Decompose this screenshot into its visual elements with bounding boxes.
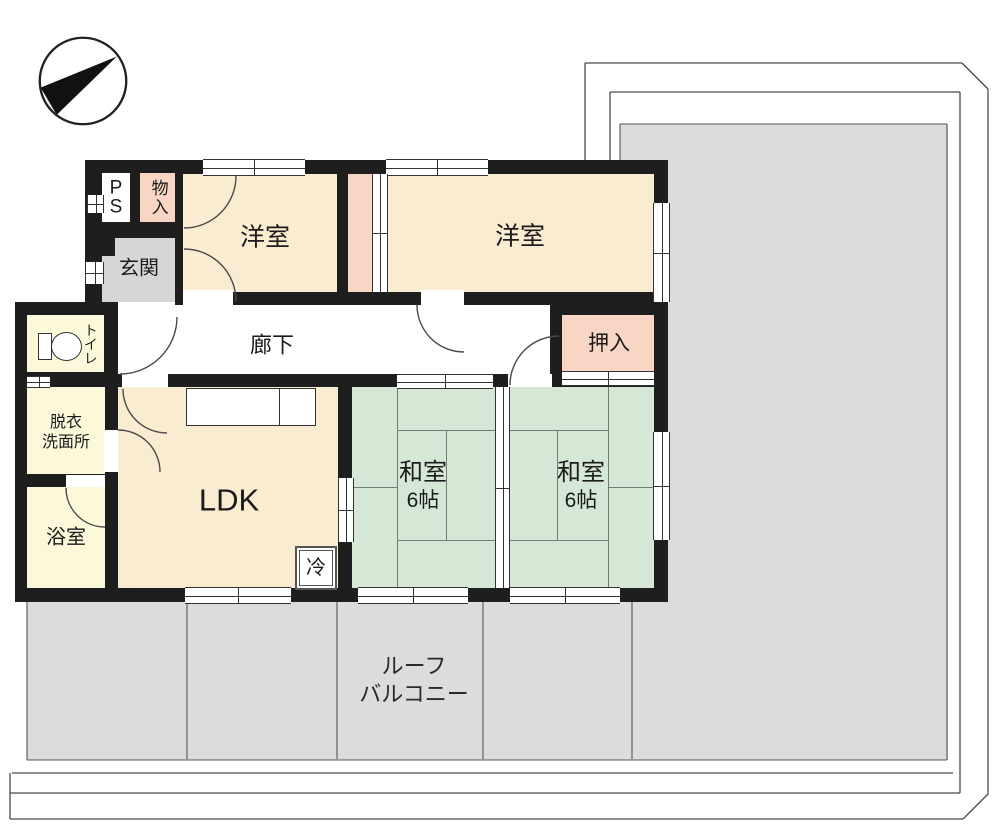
fridge-label: 冷 xyxy=(306,556,326,581)
window xyxy=(358,587,468,604)
tatami-line xyxy=(397,540,495,541)
roof-balcony-top-area xyxy=(620,124,948,162)
closet-strip xyxy=(348,174,372,292)
tatami-line xyxy=(397,387,398,588)
room-bath-label: 浴室 xyxy=(46,526,86,551)
door-arc xyxy=(417,305,464,352)
door-opening xyxy=(104,430,118,472)
room-toilet-label: トイレ xyxy=(81,323,99,365)
kitchen-counter xyxy=(186,388,316,426)
compass-icon xyxy=(36,34,130,128)
tatami-line xyxy=(608,487,654,488)
door-opening xyxy=(122,374,168,387)
room-western2-label: 洋室 xyxy=(495,221,545,252)
room-ps-label: PS xyxy=(109,179,124,218)
window xyxy=(653,203,670,302)
corridor-label: 廊下 xyxy=(250,331,294,359)
sliding-door xyxy=(338,478,354,542)
door-arc xyxy=(120,317,177,374)
tatami-line xyxy=(508,540,608,541)
room-western1-label: 洋室 xyxy=(240,222,290,253)
window xyxy=(510,587,620,604)
roof-balcony-label: ルーフ バルコニー xyxy=(359,653,469,708)
floorplan-canvas: 冷 PS 物入 玄関 洋室 洋室 廊下 押入 和室 6帖 和室 6帖 xyxy=(0,0,1000,834)
room-dressing-label: 脱衣 洗面所 xyxy=(42,413,90,453)
room-oshiire-label: 押入 xyxy=(588,331,630,357)
window xyxy=(653,432,670,540)
toilet-icon xyxy=(38,326,84,366)
window xyxy=(185,587,291,604)
corridor-top-wall xyxy=(175,290,183,305)
sliding-door xyxy=(397,374,493,389)
room-ldk-label: LDK xyxy=(199,482,259,521)
closet-side-wall xyxy=(337,160,348,292)
entrance-door xyxy=(85,262,104,284)
sliding-door xyxy=(495,387,510,588)
window xyxy=(203,159,305,176)
roof-balcony-right-area xyxy=(668,162,948,602)
window xyxy=(386,159,488,176)
tatami-line xyxy=(508,430,608,431)
window xyxy=(27,376,50,388)
room-japanese2-label: 和室 6帖 xyxy=(557,458,605,514)
room-storage-top-label: 物入 xyxy=(147,179,168,217)
tatami-line xyxy=(352,487,397,488)
sliding-door xyxy=(372,174,388,292)
door-opening xyxy=(508,374,552,387)
window xyxy=(87,195,104,213)
room-japanese1-label: 和室 6帖 xyxy=(399,458,447,514)
door-opening xyxy=(421,290,464,305)
room-genkan-label: 玄関 xyxy=(119,257,159,282)
roof-balcony-bottom-area xyxy=(27,602,948,760)
door-opening xyxy=(66,475,105,487)
door-opening xyxy=(183,290,233,305)
corridor-top-wall xyxy=(233,290,554,305)
counter-divider xyxy=(279,389,280,425)
sliding-door xyxy=(562,371,654,386)
fridge-box: 冷 xyxy=(295,546,337,590)
